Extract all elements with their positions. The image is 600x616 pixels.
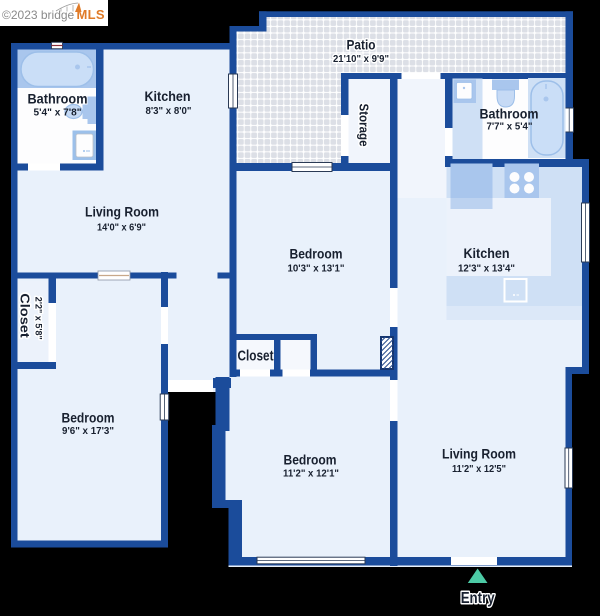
svg-text:Living Room: Living Room <box>442 446 516 462</box>
svg-text:Bedroom: Bedroom <box>284 451 337 467</box>
svg-text:Bedroom: Bedroom <box>62 410 115 426</box>
svg-text:Living Room: Living Room <box>85 204 159 220</box>
svg-text:Closet: Closet <box>18 293 33 338</box>
svg-text:10'3" x 13'1": 10'3" x 13'1" <box>288 262 345 274</box>
svg-text:12'3" x 13'4": 12'3" x 13'4" <box>458 262 515 274</box>
svg-text:Closet: Closet <box>238 348 274 364</box>
svg-text:Storage: Storage <box>357 104 371 147</box>
svg-text:21'10" x 9'9": 21'10" x 9'9" <box>333 53 389 65</box>
svg-text:11'2" x 12'1": 11'2" x 12'1" <box>283 468 339 480</box>
svg-text:Entry: Entry <box>461 590 495 607</box>
svg-text:Bedroom: Bedroom <box>290 246 343 262</box>
svg-text:Kitchen: Kitchen <box>464 245 510 261</box>
svg-text:5'4" x 7'8": 5'4" x 7'8" <box>34 106 82 118</box>
svg-text:Bathroom: Bathroom <box>28 91 88 107</box>
svg-text:8'3" x 8'0": 8'3" x 8'0" <box>146 105 192 117</box>
svg-text:Bathroom: Bathroom <box>480 106 539 122</box>
svg-text:9'6" x 17'3": 9'6" x 17'3" <box>62 425 114 437</box>
svg-text:Kitchen: Kitchen <box>145 88 191 104</box>
svg-text:14'0" x 6'9": 14'0" x 6'9" <box>97 221 146 233</box>
svg-text:Patio: Patio <box>347 37 376 53</box>
svg-text:7'7" x 5'4": 7'7" x 5'4" <box>487 120 533 132</box>
svg-text:11'2" x 12'5": 11'2" x 12'5" <box>452 463 506 475</box>
svg-text:2'2" x 5'8": 2'2" x 5'8" <box>33 297 44 340</box>
svg-text:©2023 bridge: ©2023 bridge <box>2 8 75 22</box>
